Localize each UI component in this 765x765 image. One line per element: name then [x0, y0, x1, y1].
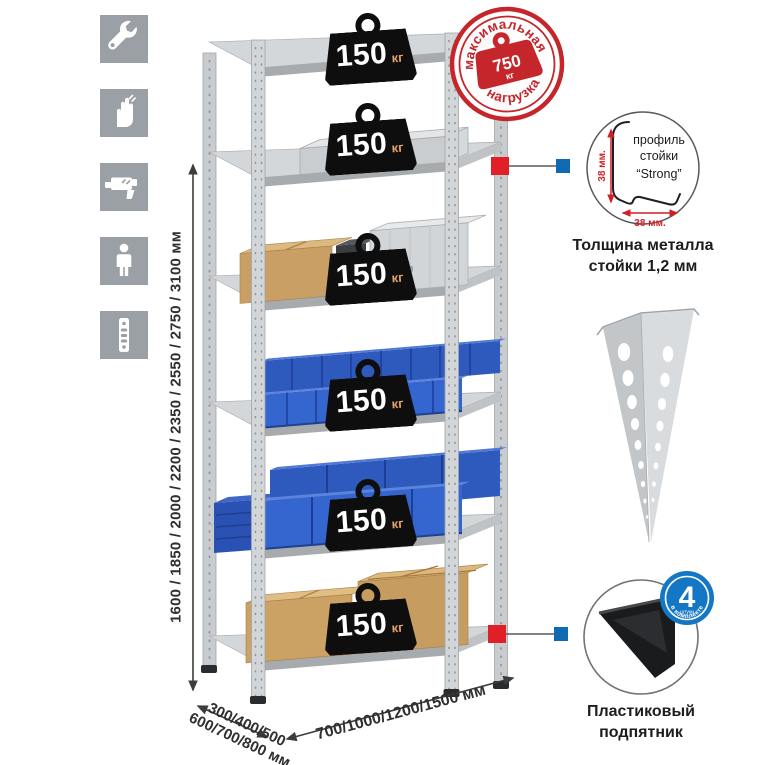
- shelf-load-badge: 150кг: [321, 100, 418, 176]
- height-dimension-label: 1600 / 1850 / 2000 / 2200 / 2350 / 2550 …: [168, 231, 185, 623]
- load-value: 150: [335, 609, 389, 643]
- max-load-stamp: максимальная нагрузка 750 кг: [440, 0, 573, 131]
- profile-dim-vertical: 38 мм.: [597, 150, 608, 182]
- shelf-load-badge: 150кг: [321, 580, 418, 656]
- profile-caption-line2: стойки 1,2 мм: [553, 257, 733, 278]
- load-value: 150: [335, 129, 389, 163]
- foot-caption-line2: подпятник: [556, 723, 726, 744]
- profile-callout-connector: [491, 157, 570, 175]
- load-value: 150: [335, 505, 389, 539]
- load-value: 150: [335, 259, 389, 293]
- shelf-load-badge: 150кг: [321, 230, 418, 306]
- load-value: 150: [335, 39, 389, 73]
- angle-post-image: [597, 309, 699, 542]
- shelf-load-badge: 150кг: [321, 476, 418, 552]
- profile-dim-horizontal: 38 мм.: [634, 218, 666, 229]
- profile-label-line1: профиль: [633, 133, 685, 147]
- load-unit: кг: [391, 270, 404, 286]
- load-unit: кг: [391, 50, 404, 66]
- foot-caption-line1: Пластиковый: [556, 702, 726, 723]
- shelf-load-badge: 150кг: [321, 10, 418, 86]
- profile-callout-circle: 38 мм. 38 мм. профиль стойки “Strong”: [587, 112, 699, 229]
- product-infographic: максимальная нагрузка 750 кг 38 мм. 38 м…: [0, 0, 765, 765]
- foot-callout-connector: [488, 625, 568, 643]
- load-unit: кг: [391, 140, 404, 156]
- profile-caption: Толщина металла стойки 1,2 мм: [553, 236, 733, 278]
- profile-caption-line1: Толщина металла: [553, 236, 733, 257]
- profile-label-line3: “Strong”: [636, 167, 681, 181]
- quantity-badge: 4 штуки в комплекте: [660, 571, 714, 625]
- load-unit: кг: [391, 396, 404, 412]
- foot-callout-circle: 4 штуки в комплекте: [584, 571, 714, 694]
- load-unit: кг: [391, 620, 404, 636]
- shelf-load-badge: 150кг: [321, 356, 418, 432]
- load-unit: кг: [391, 516, 404, 532]
- foot-caption: Пластиковый подпятник: [556, 702, 726, 744]
- load-value: 150: [335, 385, 389, 419]
- profile-label-line2: стойки: [640, 149, 678, 163]
